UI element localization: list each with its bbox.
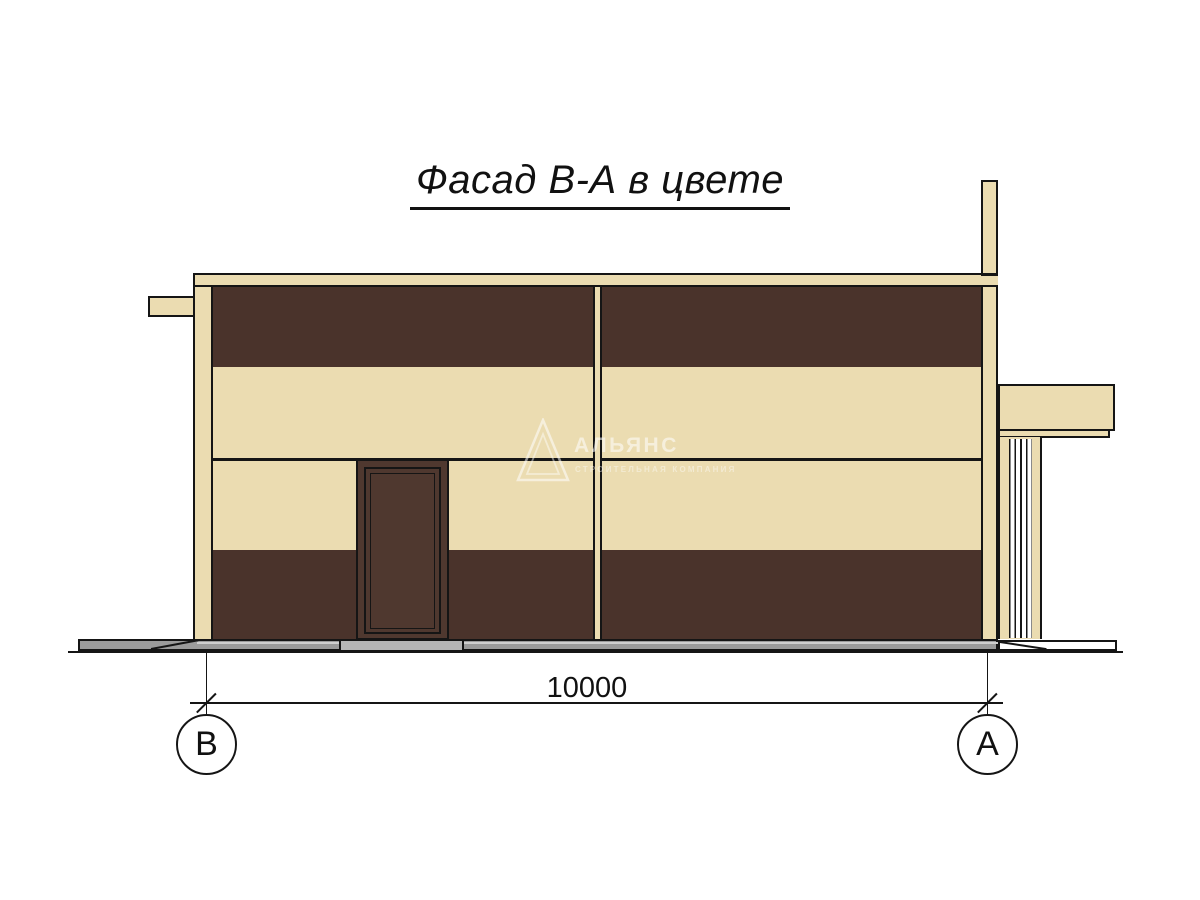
left-corner-pilaster (193, 287, 213, 639)
drawing-title-row: Фасад В-А в цвете (0, 158, 1200, 210)
side-canopy (998, 384, 1115, 431)
ground-line (68, 651, 1123, 654)
axis-bubble-right: А (957, 714, 1018, 775)
watermark: АЛЬЯНС СТРОИТЕЛЬНАЯ КОМПАНИЯ (516, 414, 691, 482)
door-leaf (370, 473, 435, 629)
watermark-name: АЛЬЯНС (574, 434, 679, 458)
entrance-door (356, 459, 449, 640)
dimension-label: 10000 (437, 672, 737, 705)
door-frame (364, 467, 441, 634)
pyramid-icon (516, 418, 570, 482)
facade-drawing-canvas: Фасад В-А в цвете 10000 В А (0, 0, 1200, 900)
right-corner-post (981, 180, 998, 640)
drawing-title: Фасад В-А в цвете (410, 158, 790, 210)
left-beam-end (148, 296, 197, 317)
fascia-line-over-post (981, 285, 998, 288)
right-base-slab (998, 640, 1117, 651)
axis-bubble-left: В (176, 714, 237, 775)
axis-label-left: В (195, 725, 218, 764)
axis-label-right: А (976, 725, 999, 764)
watermark-tagline: СТРОИТЕЛЬНАЯ КОМПАНИЯ (575, 465, 737, 474)
plinth-edge-line (197, 642, 998, 645)
roof-fascia (193, 273, 998, 287)
column-flutes (1009, 439, 1032, 638)
fascia-line-over-post (981, 273, 998, 276)
